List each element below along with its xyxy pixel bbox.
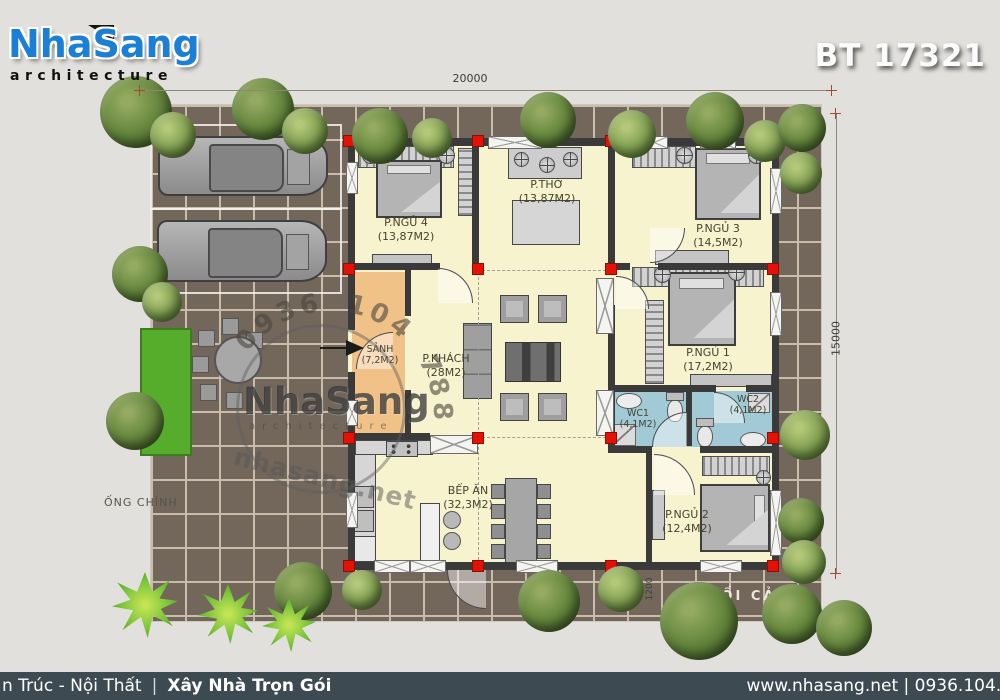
- dimension-tick: [830, 108, 841, 119]
- porch-dimension-label: 1200: [645, 567, 655, 611]
- column-marker: [472, 560, 484, 572]
- room-area: (4,1M2): [612, 419, 664, 430]
- dining-chair: [491, 544, 505, 559]
- tree: [412, 118, 452, 158]
- armchair: [500, 295, 529, 323]
- room-name: P.KHÁCH: [396, 352, 496, 366]
- tree: [762, 584, 822, 644]
- coffee-table: [505, 342, 561, 382]
- tree: [780, 152, 822, 194]
- column-marker: [767, 560, 779, 572]
- dining-chair: [537, 524, 551, 539]
- room-label-pngu3: P.NGỦ 3 (14,5M2): [668, 222, 768, 251]
- room-label-pkhach: P.KHÁCH (28M2): [396, 352, 496, 381]
- wall: [608, 385, 716, 392]
- table: [512, 200, 580, 245]
- room-label-bepan: BẾP ĂN (32,3M2): [418, 484, 518, 513]
- tree: [780, 410, 830, 460]
- window: [700, 560, 742, 573]
- tree: [352, 108, 408, 164]
- tree: [142, 282, 182, 322]
- garden-chair: [198, 330, 215, 347]
- window: [346, 162, 358, 194]
- column-marker: [767, 432, 779, 444]
- dimension-height-label: 15000: [830, 309, 843, 369]
- room-name: BẾP ĂN: [418, 484, 518, 498]
- pass-through-window: [430, 435, 478, 454]
- column-marker: [767, 263, 779, 275]
- wall: [405, 268, 411, 316]
- column-marker: [472, 135, 484, 147]
- wall: [348, 433, 430, 440]
- dimension-line-top: [140, 90, 832, 91]
- tree: [150, 112, 196, 158]
- tree: [778, 104, 826, 152]
- toilet: [697, 426, 713, 447]
- dimension-tick: [826, 85, 837, 96]
- tree: [598, 566, 644, 612]
- dining-chair: [491, 524, 505, 539]
- armchair: [500, 393, 529, 421]
- wall: [405, 390, 411, 437]
- room-area: (13,87M2): [356, 230, 456, 244]
- footer-bar: n Trúc - Nội Thất|Xây Nhà Trọn Gói www.n…: [0, 672, 1000, 700]
- tree: [778, 498, 824, 544]
- fridge: [354, 536, 376, 562]
- column-marker: [605, 263, 617, 275]
- tree: [518, 570, 580, 632]
- room-area: (14,5M2): [668, 236, 768, 250]
- column-marker: [605, 432, 617, 444]
- main-pipe-label: ỐNG CHÍNH: [104, 496, 178, 509]
- grid-dash: [482, 270, 606, 271]
- room-area: (17,2M2): [658, 360, 758, 374]
- window: [346, 400, 358, 426]
- wall: [658, 263, 779, 270]
- window: [346, 492, 358, 528]
- window: [410, 560, 446, 573]
- stool: [443, 532, 461, 550]
- plan-code: BT 17321: [815, 38, 986, 74]
- column-marker: [472, 263, 484, 275]
- armchair: [538, 393, 567, 421]
- altar-bowl: [514, 152, 529, 167]
- armchair-seat: [506, 399, 523, 415]
- car-cabin: [209, 144, 284, 192]
- grid-dash: [478, 272, 479, 560]
- room-label-ptho: P.THỜ (13,87M2): [497, 178, 597, 207]
- tree: [342, 570, 382, 610]
- armchair: [538, 295, 567, 323]
- footer-left-bold: Xây Nhà Trọn Gói: [167, 676, 331, 696]
- room-area: (13,87M2): [497, 192, 597, 206]
- window: [770, 292, 782, 336]
- column-marker: [343, 263, 355, 275]
- garden-chair: [222, 318, 239, 335]
- bed: [376, 160, 442, 218]
- entry-arrow-line: [320, 347, 348, 349]
- sink: [616, 393, 642, 409]
- footer-contact-text: www.nhasang.net | 0936.104.7: [746, 676, 1000, 696]
- room-area: (4,1M2): [722, 405, 774, 416]
- wall: [472, 138, 479, 271]
- armchair-seat: [506, 301, 523, 317]
- wall: [746, 385, 779, 392]
- ceiling-symbol: [756, 470, 771, 485]
- room-name: WC1: [612, 408, 664, 419]
- car: [157, 220, 327, 282]
- cabinet: [596, 278, 614, 334]
- altar-bowl: [539, 157, 555, 173]
- column-marker: [343, 560, 355, 572]
- wall: [348, 263, 440, 270]
- column-marker: [343, 432, 355, 444]
- room-name: P.NGỦ 4: [356, 216, 456, 230]
- dimension-tick: [134, 85, 145, 96]
- garden-table: [214, 336, 262, 384]
- tree: [106, 392, 164, 450]
- room-area: (32,3M2): [418, 498, 518, 512]
- car-cabin: [208, 228, 283, 278]
- grid-dash: [482, 437, 606, 438]
- stool: [443, 511, 461, 529]
- floor-plan-canvas: P.NGỦ 4 (13,87M2) P.THỜ (13,87M2) P.NGỦ …: [0, 0, 1000, 700]
- palm-plant: [112, 572, 178, 638]
- room-area: (12,4M2): [637, 522, 737, 536]
- brand-logo: NhaSang: [8, 22, 200, 66]
- garden-chair: [192, 356, 209, 373]
- room-name: P.NGỦ 3: [668, 222, 768, 236]
- ceiling-symbol: [676, 147, 693, 164]
- tree: [608, 110, 656, 158]
- garden-chair: [200, 384, 217, 401]
- garden-chair: [226, 392, 243, 409]
- room-name: P.NGỦ 2: [637, 508, 737, 522]
- stove: [386, 441, 418, 457]
- room-name: P.NGỦ 1: [658, 346, 758, 360]
- tree: [520, 92, 576, 148]
- room-label-pngu4: P.NGỦ 4 (13,87M2): [356, 216, 456, 245]
- room-name: P.THỜ: [497, 178, 597, 192]
- tree: [816, 600, 872, 656]
- tree: [686, 92, 744, 150]
- dining-chair: [537, 504, 551, 519]
- room-area: (28M2): [396, 366, 496, 380]
- entry-arrow-icon: [346, 340, 364, 356]
- room-label-pngu1: P.NGỦ 1 (17,2M2): [658, 346, 758, 375]
- brand-logo-subtitle: architecture: [10, 68, 173, 84]
- altar-bowl: [563, 152, 578, 167]
- dimension-tick: [830, 568, 841, 579]
- bed: [668, 272, 736, 346]
- dining-chair: [537, 544, 551, 559]
- room-label-wc2: WC2 (4,1M2): [722, 394, 774, 417]
- wall: [700, 446, 779, 453]
- dimension-width-label: 20000: [440, 72, 500, 85]
- window: [374, 560, 410, 573]
- armchair-seat: [544, 399, 561, 415]
- dining-chair: [537, 484, 551, 499]
- footer-left-text: n Trúc - Nội Thất|Xây Nhà Trọn Gói: [2, 676, 331, 696]
- room-name: WC2: [722, 394, 774, 405]
- room-label-pngu2: P.NGỦ 2 (12,4M2): [637, 508, 737, 537]
- footer-separator: |: [152, 676, 158, 696]
- room-label-wc1: WC1 (4,1M2): [612, 408, 664, 431]
- wall: [608, 138, 615, 275]
- tree: [660, 582, 738, 660]
- tree: [782, 540, 826, 584]
- tree: [282, 108, 328, 154]
- car-hood: [287, 149, 309, 185]
- armchair-seat: [544, 301, 561, 317]
- column-marker: [472, 432, 484, 444]
- car-hood: [286, 234, 308, 271]
- footer-left-prefix: n Trúc - Nội Thất: [2, 676, 142, 696]
